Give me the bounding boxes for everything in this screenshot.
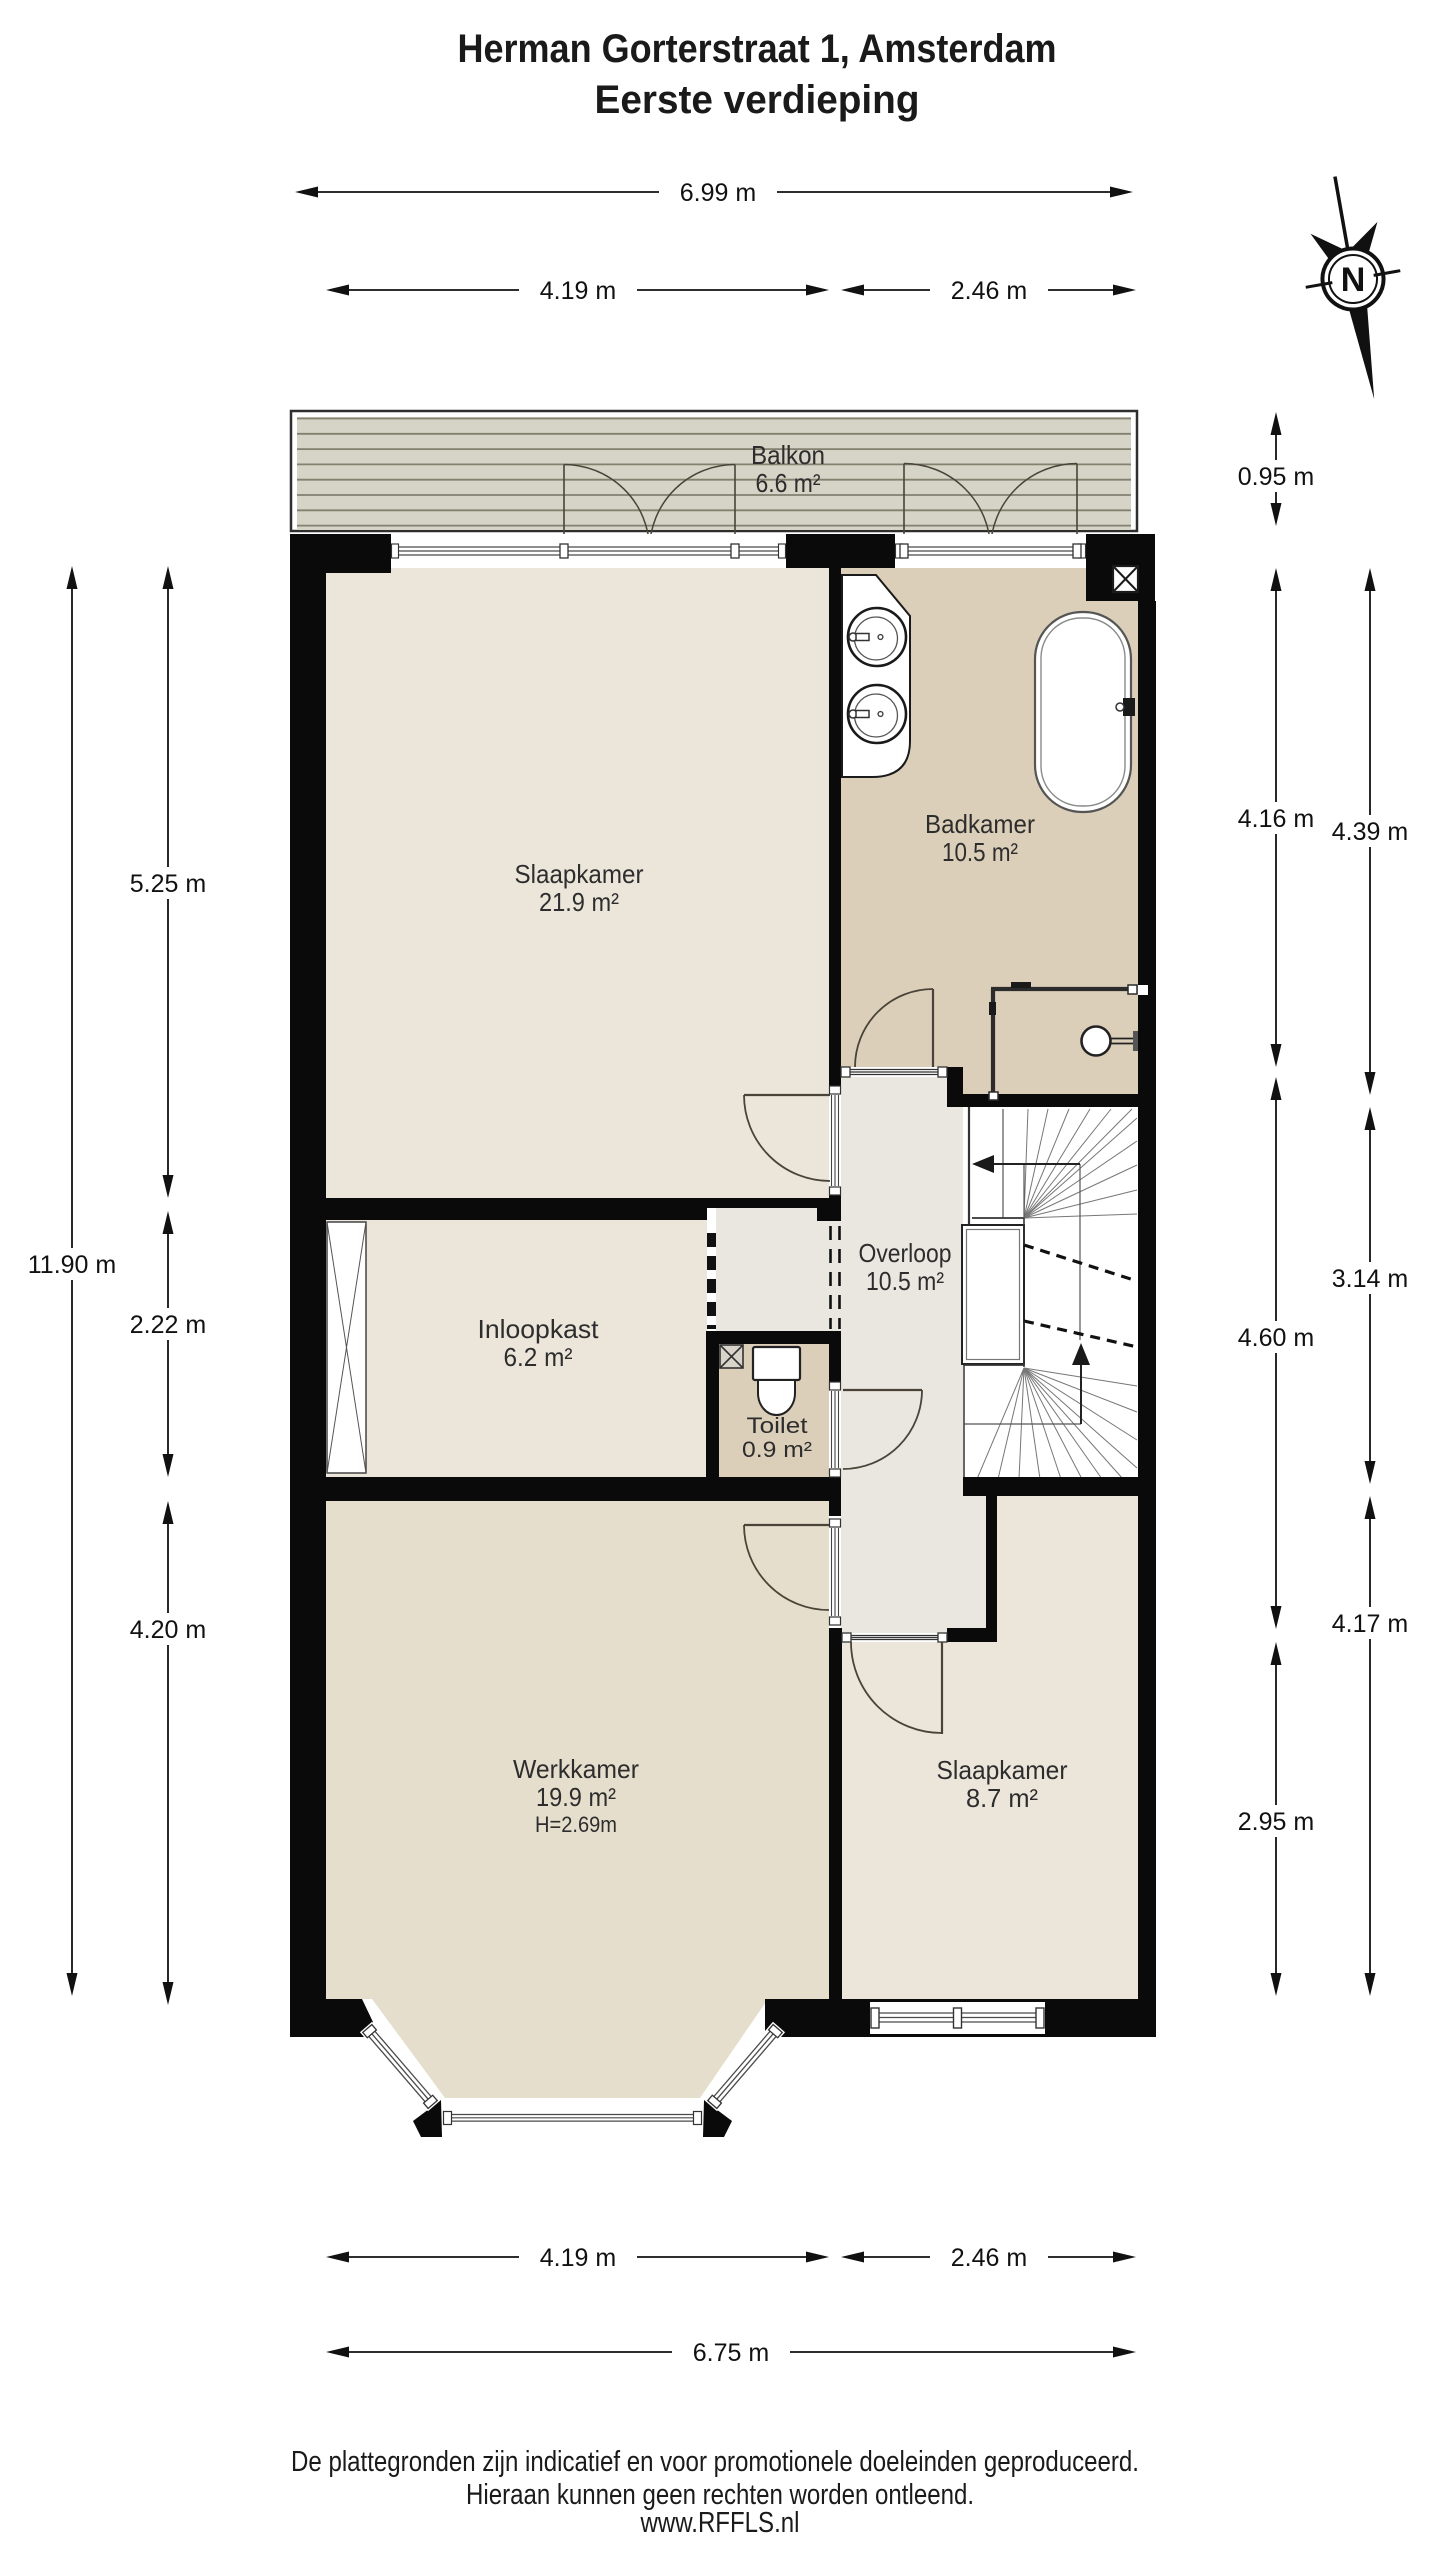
svg-text:6.2 m²: 6.2 m² [504, 1342, 573, 1372]
svg-text:6.99 m: 6.99 m [680, 179, 756, 207]
svg-text:H=2.69m: H=2.69m [535, 1812, 617, 1837]
svg-text:N: N [1341, 261, 1366, 299]
svg-text:2.22 m: 2.22 m [130, 1311, 206, 1339]
svg-text:11.90 m: 11.90 m [28, 1251, 116, 1279]
svg-text:4.20 m: 4.20 m [130, 1616, 206, 1644]
svg-text:4.19 m: 4.19 m [540, 277, 616, 305]
svg-text:8.7 m²: 8.7 m² [966, 1783, 1038, 1813]
svg-text:4.16 m: 4.16 m [1238, 805, 1314, 833]
svg-text:Badkamer: Badkamer [925, 809, 1035, 839]
svg-text:0.95 m: 0.95 m [1238, 463, 1314, 491]
svg-text:5.25 m: 5.25 m [130, 870, 206, 898]
svg-text:3.14 m: 3.14 m [1332, 1265, 1408, 1293]
svg-text:Slaapkamer: Slaapkamer [515, 859, 644, 889]
svg-text:4.17 m: 4.17 m [1332, 1610, 1408, 1638]
svg-text:4.60 m: 4.60 m [1238, 1324, 1314, 1352]
svg-text:Eerste verdieping: Eerste verdieping [595, 78, 920, 122]
svg-text:6.75 m: 6.75 m [693, 2339, 769, 2367]
svg-text:2.46 m: 2.46 m [951, 2244, 1027, 2272]
svg-text:2.46 m: 2.46 m [951, 277, 1027, 305]
svg-text:4.39 m: 4.39 m [1332, 818, 1408, 846]
svg-text:Slaapkamer: Slaapkamer [937, 1755, 1068, 1785]
svg-text:6.6 m²: 6.6 m² [756, 468, 821, 498]
svg-text:Balkon: Balkon [751, 440, 825, 470]
svg-text:21.9 m²: 21.9 m² [539, 887, 619, 917]
svg-text:De plattegronden zijn indicati: De plattegronden zijn indicatief en voor… [291, 2446, 1139, 2478]
svg-text:10.5 m²: 10.5 m² [866, 1266, 944, 1296]
svg-text:Werkkamer: Werkkamer [513, 1754, 639, 1784]
svg-text:Toilet: Toilet [747, 1413, 808, 1438]
svg-text:0.9 m²: 0.9 m² [742, 1437, 812, 1462]
svg-text:19.9 m²: 19.9 m² [536, 1782, 616, 1812]
svg-text:Inloopkast: Inloopkast [478, 1314, 600, 1344]
svg-text:Overloop: Overloop [859, 1238, 952, 1268]
svg-text:www.RFFLS.nl: www.RFFLS.nl [640, 2507, 800, 2539]
svg-text:2.95 m: 2.95 m [1238, 1808, 1314, 1836]
svg-text:Herman Gorterstraat 1, Amsterd: Herman Gorterstraat 1, Amsterdam [458, 27, 1057, 71]
svg-text:10.5 m²: 10.5 m² [942, 837, 1018, 867]
svg-text:4.19 m: 4.19 m [540, 2244, 616, 2272]
